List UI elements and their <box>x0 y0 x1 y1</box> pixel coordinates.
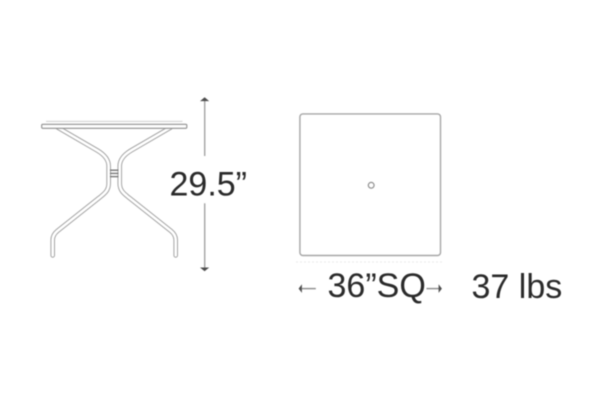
svg-text:36”SQ: 36”SQ <box>328 267 426 305</box>
svg-text:29.5”: 29.5” <box>170 166 248 204</box>
svg-text:37 lbs: 37 lbs <box>472 268 563 306</box>
